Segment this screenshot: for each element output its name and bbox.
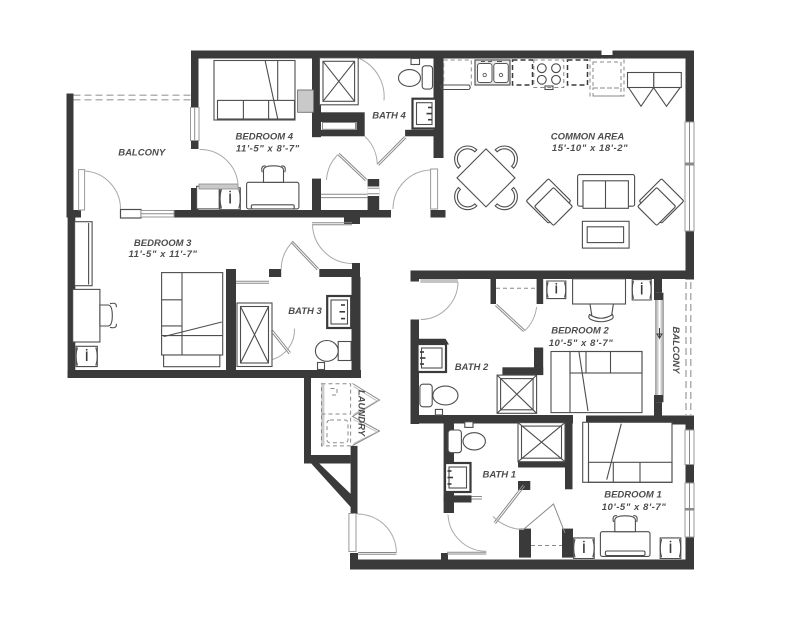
svg-text:BALCONY: BALCONY [118, 147, 167, 158]
svg-text:15'-10" x 18'-2": 15'-10" x 18'-2" [552, 143, 628, 154]
svg-text:BALCONY: BALCONY [670, 327, 681, 376]
svg-text:11'-5" x 11'-7": 11'-5" x 11'-7" [129, 249, 198, 260]
svg-text:BEDROOM 1: BEDROOM 1 [604, 490, 662, 501]
svg-text:COMMON AREA: COMMON AREA [551, 132, 625, 143]
svg-text:10'-5" x 8'-7": 10'-5" x 8'-7" [602, 502, 667, 513]
svg-text:BEDROOM 3: BEDROOM 3 [134, 238, 192, 249]
svg-text:BATH 1: BATH 1 [482, 470, 516, 481]
svg-text:BEDROOM 2: BEDROOM 2 [551, 326, 609, 337]
svg-text:11'-5" x 8'-7": 11'-5" x 8'-7" [236, 144, 300, 155]
svg-text:BATH 4: BATH 4 [372, 111, 406, 122]
svg-text:10'-5" x 8'-7": 10'-5" x 8'-7" [549, 338, 614, 349]
svg-text:BATH 2: BATH 2 [455, 362, 489, 373]
svg-text:BEDROOM 4: BEDROOM 4 [236, 132, 294, 143]
svg-text:LAUNDRY: LAUNDRY [355, 390, 366, 438]
svg-text:BATH 3: BATH 3 [288, 306, 322, 317]
